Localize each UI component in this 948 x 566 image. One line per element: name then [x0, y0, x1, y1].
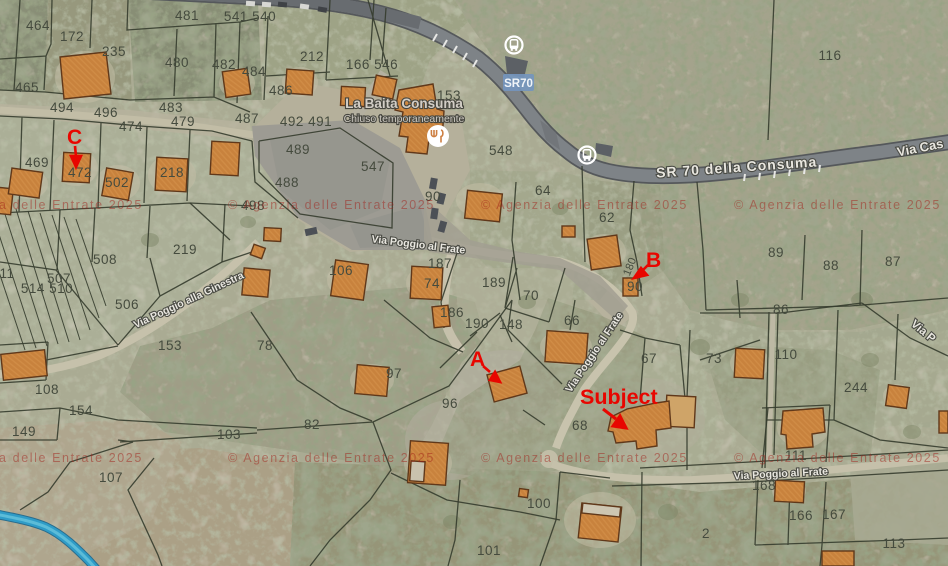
svg-text:© Agenzia delle Entrate 2025: © Agenzia delle Entrate 2025 [228, 198, 435, 212]
svg-text:107: 107 [99, 470, 123, 485]
svg-text:154: 154 [69, 403, 93, 418]
svg-text:C: C [67, 126, 82, 149]
svg-text:189: 189 [482, 275, 506, 290]
svg-text:496: 496 [94, 105, 118, 120]
svg-text:166 546: 166 546 [346, 57, 398, 72]
svg-text:148: 148 [499, 317, 523, 332]
svg-text:480: 480 [165, 55, 189, 70]
svg-text:548: 548 [489, 143, 513, 158]
svg-text:87: 87 [885, 254, 901, 269]
svg-text:88: 88 [823, 258, 839, 273]
svg-text:492 491: 492 491 [280, 114, 332, 129]
svg-text:482: 482 [212, 57, 236, 72]
svg-text:© Agenzia delle Entrate 2025: © Agenzia delle Entrate 2025 [228, 451, 435, 465]
svg-text:502: 502 [105, 175, 129, 190]
svg-text:472: 472 [68, 165, 92, 180]
svg-text:116: 116 [818, 48, 841, 63]
svg-text:96: 96 [442, 396, 458, 411]
svg-text:172: 172 [60, 29, 84, 44]
svg-text:B: B [646, 249, 661, 272]
svg-text:66: 66 [564, 313, 580, 328]
svg-text:108: 108 [35, 382, 59, 397]
svg-text:74: 74 [424, 276, 440, 291]
svg-text:167: 167 [822, 507, 846, 522]
svg-text:62: 62 [599, 210, 615, 225]
svg-text:© Agenzia delle Entrate 2025: © Agenzia delle Entrate 2025 [481, 451, 688, 465]
svg-text:89: 89 [768, 245, 784, 260]
svg-text:86: 86 [773, 302, 789, 317]
svg-text:474: 474 [119, 119, 143, 134]
svg-text:469: 469 [25, 155, 49, 170]
svg-text:106: 106 [329, 263, 353, 278]
svg-text:90: 90 [627, 279, 643, 294]
svg-text:186: 186 [440, 305, 464, 320]
svg-text:113: 113 [882, 536, 905, 551]
svg-text:511: 511 [0, 266, 15, 281]
svg-text:212: 212 [300, 49, 324, 64]
svg-text:73: 73 [706, 351, 722, 366]
svg-text:78: 78 [257, 338, 273, 353]
svg-text:68: 68 [572, 418, 588, 433]
svg-text:82: 82 [304, 417, 320, 432]
svg-text:484: 484 [242, 64, 266, 79]
svg-text:103: 103 [217, 427, 241, 442]
svg-text:149: 149 [12, 424, 36, 439]
svg-text:2: 2 [702, 526, 710, 541]
svg-text:© Agenzia delle Entrate 2025: © Agenzia delle Entrate 2025 [481, 198, 688, 212]
svg-text:244: 244 [844, 380, 868, 395]
svg-text:547: 547 [361, 159, 385, 174]
svg-text:110: 110 [774, 347, 797, 362]
svg-text:488: 488 [275, 175, 299, 190]
svg-text:190: 190 [465, 316, 489, 331]
svg-text:464: 464 [26, 18, 50, 33]
svg-text:64: 64 [535, 183, 551, 198]
svg-text:465: 465 [15, 80, 39, 95]
svg-text:489: 489 [286, 142, 310, 157]
svg-text:101: 101 [477, 543, 501, 558]
svg-text:Subject: Subject [580, 385, 658, 409]
svg-text:487: 487 [235, 111, 259, 126]
svg-text:© Agenzia delle Entrate 2025: © Agenzia delle Entrate 2025 [734, 198, 941, 212]
svg-text:483: 483 [159, 100, 183, 115]
svg-text:219: 219 [173, 242, 197, 257]
svg-text:218: 218 [160, 165, 184, 180]
svg-text:SR70: SR70 [504, 78, 533, 90]
svg-text:494: 494 [50, 100, 74, 115]
svg-text:© Agenzia delle Entrate 2025: © Agenzia delle Entrate 2025 [734, 451, 941, 465]
svg-text:514 510: 514 510 [21, 281, 73, 296]
svg-text:479: 479 [171, 114, 195, 129]
svg-text:Chiuso temporaneamente: Chiuso temporaneamente [344, 113, 465, 125]
svg-text:67: 67 [641, 351, 657, 366]
svg-text:481: 481 [175, 8, 199, 23]
svg-text:541 540: 541 540 [224, 9, 276, 24]
svg-text:La Baita Consuma: La Baita Consuma [345, 96, 463, 111]
svg-text:187: 187 [428, 256, 452, 271]
svg-text:70: 70 [523, 288, 539, 303]
svg-text:100: 100 [527, 496, 551, 511]
svg-text:508: 508 [93, 252, 117, 267]
svg-text:506: 506 [115, 297, 139, 312]
svg-text:235: 235 [102, 44, 126, 59]
svg-text:166: 166 [789, 508, 813, 523]
svg-text:© Agenzia delle Entrate 2025: © Agenzia delle Entrate 2025 [0, 198, 143, 212]
svg-text:© Agenzia delle Entrate 2025: © Agenzia delle Entrate 2025 [0, 451, 143, 465]
svg-text:97: 97 [386, 366, 402, 381]
svg-text:153: 153 [158, 338, 182, 353]
svg-text:486: 486 [269, 83, 293, 98]
